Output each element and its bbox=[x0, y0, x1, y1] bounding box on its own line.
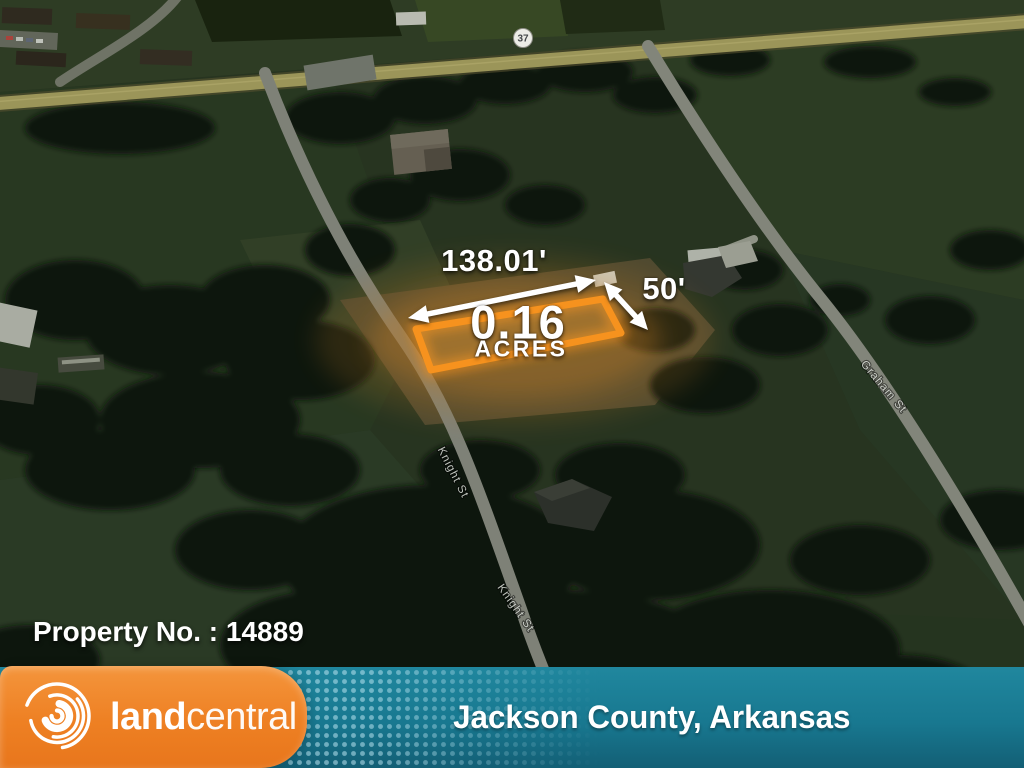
landcentral-logo-panel: landcentral bbox=[0, 666, 307, 768]
brand-word-central: central bbox=[186, 696, 297, 738]
landcentral-swirl-icon bbox=[18, 677, 96, 755]
county-banner: Jackson County, Arkansas bbox=[314, 667, 1017, 768]
depth-dimension-label: 50' bbox=[642, 271, 685, 307]
property-flyer: Knight St Knight St Graham St 37 bbox=[0, 0, 1024, 768]
highway-37-badge: 37 bbox=[514, 29, 533, 48]
satellite-map: Knight St Knight St Graham St 37 bbox=[0, 0, 1024, 768]
svg-text:37: 37 bbox=[517, 34, 529, 45]
property-number: Property No. : 14889 bbox=[33, 616, 304, 648]
brand-word-land: land bbox=[110, 696, 186, 738]
brand-wordmark: landcentral bbox=[110, 698, 297, 736]
brand-bar: Jackson County, Arkansas landcentral bbox=[0, 666, 1024, 768]
acreage-unit: ACRES bbox=[474, 336, 567, 363]
width-dimension-label: 138.01' bbox=[441, 243, 547, 279]
